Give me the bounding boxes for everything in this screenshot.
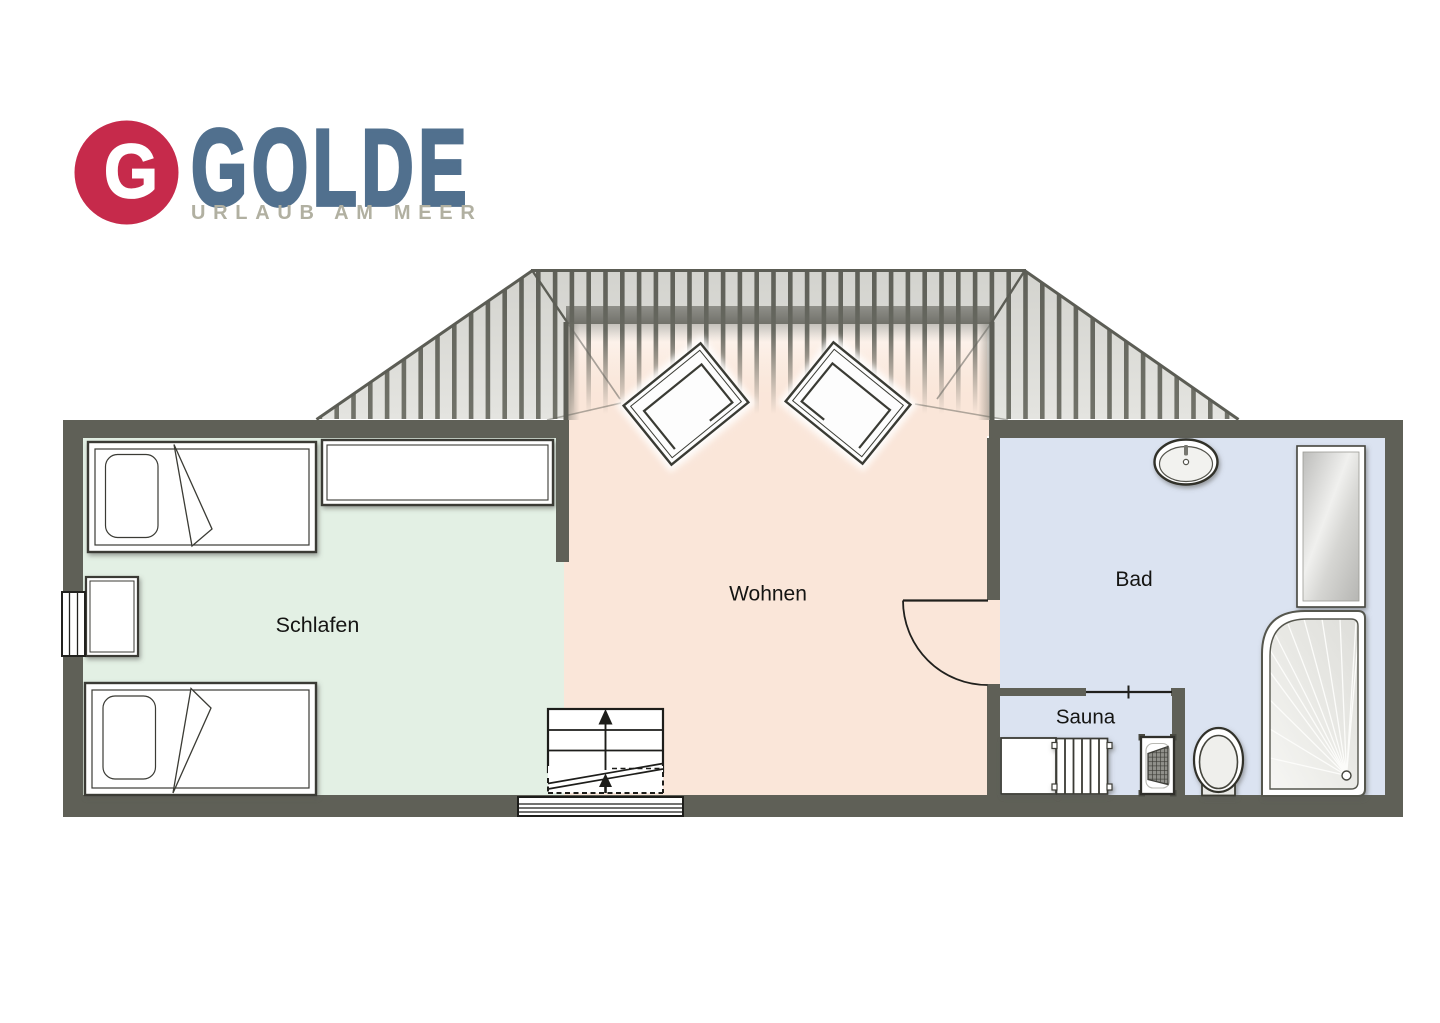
svg-text:Sauna: Sauna	[1056, 706, 1116, 729]
svg-text:URLAUB AM MEER: URLAUB AM MEER	[191, 202, 483, 224]
svg-text:G: G	[104, 130, 158, 214]
svg-text:Schlafen: Schlafen	[276, 613, 360, 637]
svg-text:Wohnen: Wohnen	[729, 583, 807, 606]
svg-text:Bad: Bad	[1115, 568, 1152, 591]
